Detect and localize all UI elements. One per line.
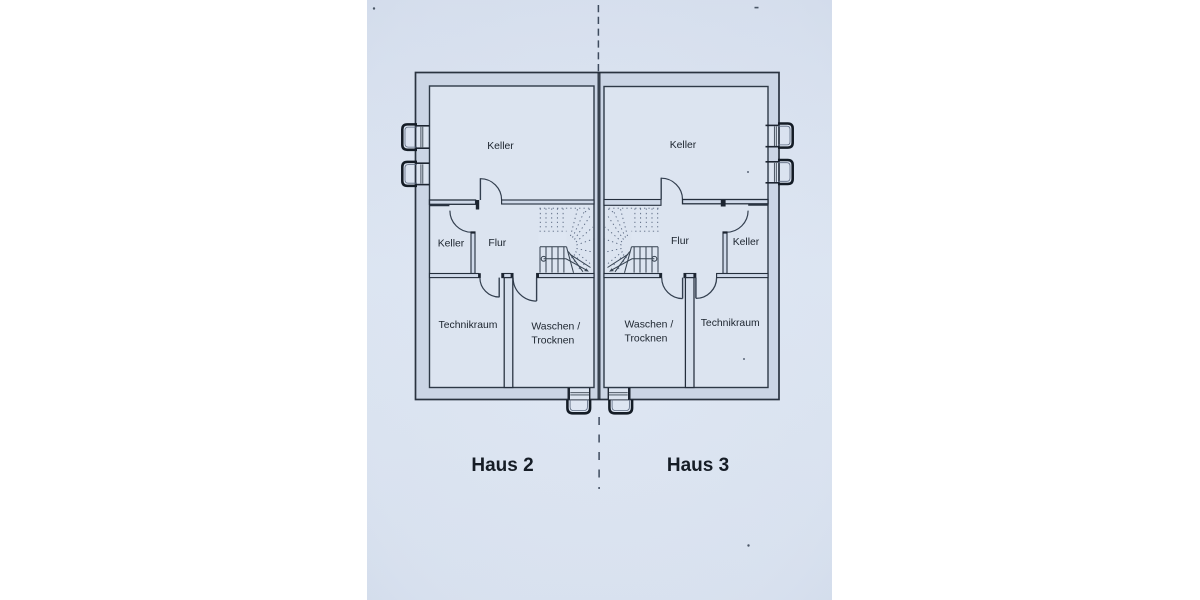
svg-text:Keller: Keller (670, 140, 697, 151)
svg-text:Waschen /: Waschen / (625, 320, 674, 331)
svg-text:Technikraum: Technikraum (439, 320, 498, 331)
svg-text:Haus 2: Haus 2 (471, 455, 533, 476)
svg-text:Keller: Keller (487, 141, 514, 152)
svg-text:Keller: Keller (733, 237, 760, 248)
svg-text:Haus 3: Haus 3 (667, 455, 729, 476)
svg-text:Trocknen: Trocknen (531, 336, 574, 347)
svg-text:Trocknen: Trocknen (625, 334, 668, 345)
svg-text:Keller: Keller (438, 239, 465, 250)
svg-text:Flur: Flur (671, 236, 689, 247)
svg-text:Flur: Flur (488, 238, 506, 249)
svg-text:Waschen /: Waschen / (531, 322, 580, 333)
svg-text:Technikraum: Technikraum (701, 318, 760, 329)
